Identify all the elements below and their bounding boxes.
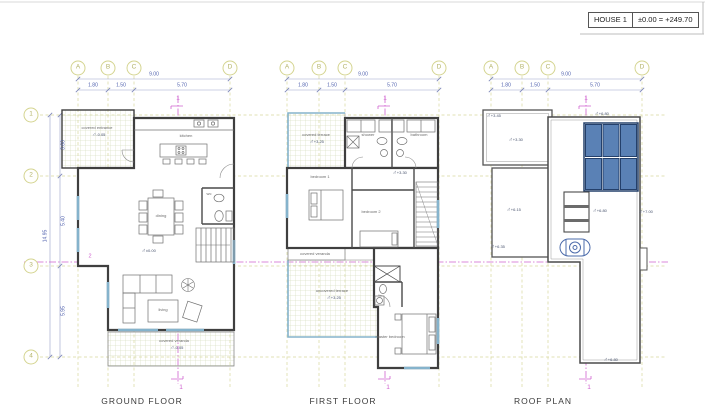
bedroom-block bbox=[287, 168, 438, 248]
room-label-entrance: covered entrance bbox=[82, 126, 113, 130]
grid-bubble-row: 1 bbox=[24, 108, 39, 123]
grid-bubble-col: D bbox=[635, 61, 650, 76]
room-label-living: living bbox=[158, 308, 167, 312]
level-mark: ◿+6.15 bbox=[507, 208, 521, 212]
dim-total: 9.00 bbox=[149, 73, 159, 78]
first-floor-drawing bbox=[287, 113, 438, 368]
level-mark: ◿+3.30 bbox=[393, 171, 407, 175]
title-block: HOUSE 1 ±0.00 = +249.70 bbox=[588, 12, 699, 28]
grid-bubble-col: A bbox=[71, 61, 86, 76]
level-mark: ◿+6.35 bbox=[491, 245, 505, 249]
grid-bubble-col: C bbox=[127, 61, 142, 76]
grid-bubble-col: B bbox=[101, 61, 116, 76]
datum-label: ±0.00 = +249.70 bbox=[632, 13, 698, 27]
section-marker: 2 bbox=[88, 254, 91, 260]
dim-total: 9.00 bbox=[561, 73, 571, 78]
room-label-uncovered: uncovered terrace bbox=[316, 289, 348, 293]
level-mark: ◿+6.80 bbox=[593, 209, 607, 213]
dim-row-total: 14.95 bbox=[44, 230, 49, 243]
level-flag-icon: ◿ bbox=[509, 138, 512, 142]
dim-seg: 5.70 bbox=[387, 84, 397, 89]
level-mark: ◿-0.05 bbox=[171, 346, 184, 350]
level-flag-icon: ◿ bbox=[595, 112, 598, 116]
level-flag-icon: ◿ bbox=[142, 249, 145, 253]
drawing-sheet: { "title_block": { "house_label": "HOUSE… bbox=[0, 0, 705, 419]
level-mark: ◿+6.80 bbox=[604, 358, 618, 362]
level-mark: ◿+7.00 bbox=[639, 210, 653, 214]
dim-seg: 1.50 bbox=[327, 84, 337, 89]
level-flag-icon: ◿ bbox=[93, 133, 96, 137]
dim-seg: 1.50 bbox=[116, 84, 126, 89]
level-flag-icon: ◿ bbox=[393, 171, 396, 175]
level-mark: ◿+3.30 bbox=[509, 138, 523, 142]
level-flag-icon: ◿ bbox=[171, 346, 174, 350]
section-marker: 1 bbox=[587, 385, 591, 392]
dim-row-seg: 3.60 bbox=[62, 140, 67, 150]
room-label-shower: shower bbox=[362, 133, 375, 137]
grid-bubble-row: 3 bbox=[24, 259, 39, 274]
solar-panels bbox=[584, 123, 638, 191]
plan-title-first: FIRST FLOOR bbox=[309, 396, 376, 406]
level-mark: ◿-0.05 bbox=[93, 133, 106, 137]
room-label-balcony: covered veranda bbox=[300, 252, 330, 256]
roof-drawing bbox=[483, 110, 647, 363]
room-label-dining: dining bbox=[156, 214, 167, 218]
level-flag-icon: ◿ bbox=[327, 296, 330, 300]
grid-bubble-col: C bbox=[338, 61, 353, 76]
room-label-wc: wc bbox=[207, 192, 212, 196]
dim-row-seg: 5.95 bbox=[62, 306, 67, 316]
room-label-kitchen: kitchen bbox=[180, 134, 193, 138]
dim-seg: 1.80 bbox=[88, 84, 98, 89]
dim-seg: 1.50 bbox=[530, 84, 540, 89]
plan-title-ground: GROUND FLOOR bbox=[101, 396, 182, 406]
level-mark: ◿±0.00 bbox=[142, 249, 156, 253]
chimney bbox=[640, 248, 647, 270]
grid-bubble-row: 4 bbox=[24, 350, 39, 365]
section-marker: 1 bbox=[584, 96, 588, 103]
level-mark: ◿+3.25 bbox=[310, 140, 324, 144]
grid-bubble-col: A bbox=[280, 61, 295, 76]
grid-bubble-col: A bbox=[484, 61, 499, 76]
section-marker: 1 bbox=[386, 385, 390, 392]
level-flag-icon: ◿ bbox=[593, 209, 596, 213]
level-mark: ◿+3.25 bbox=[327, 296, 341, 300]
section-marker: 1 bbox=[383, 96, 387, 103]
room-label-bedroom2: bedroom 2 bbox=[361, 210, 380, 214]
level-flag-icon: ◿ bbox=[507, 208, 510, 212]
dim-total: 9.00 bbox=[358, 73, 368, 78]
level-flag-icon: ◿ bbox=[487, 114, 490, 118]
ground-floor-drawing bbox=[62, 110, 234, 366]
grid-bubble-col: D bbox=[432, 61, 447, 76]
room-label-master: master bedroom bbox=[375, 335, 404, 339]
level-mark: ◿+6.80 bbox=[595, 112, 609, 116]
level-mark: ◿+3.45 bbox=[487, 114, 501, 118]
grid-bubble-col: C bbox=[541, 61, 556, 76]
house-label: HOUSE 1 bbox=[589, 13, 632, 27]
level-flag-icon: ◿ bbox=[639, 210, 642, 214]
grid-bubble-col: D bbox=[223, 61, 238, 76]
room-label-bedroom1: bedroom 1 bbox=[310, 175, 329, 179]
room-label-terrace: covered terrace bbox=[302, 133, 330, 137]
level-flag-icon: ◿ bbox=[310, 140, 313, 144]
dim-seg: 1.80 bbox=[501, 84, 511, 89]
grid-bubble-col: B bbox=[312, 61, 327, 76]
grid-bubble-row: 2 bbox=[24, 169, 39, 184]
section-marker: 1 bbox=[179, 385, 183, 392]
section-marker: 1 bbox=[176, 96, 180, 103]
dim-row-seg: 5.40 bbox=[62, 216, 67, 226]
level-flag-icon: ◿ bbox=[491, 245, 494, 249]
grid-bubble-col: B bbox=[515, 61, 530, 76]
room-label-bathroom: bathroom bbox=[411, 133, 428, 137]
dim-seg: 5.70 bbox=[590, 84, 600, 89]
dim-seg: 5.70 bbox=[177, 84, 187, 89]
dim-seg: 1.80 bbox=[298, 84, 308, 89]
entrance-porch bbox=[62, 110, 134, 168]
room-label-veranda: covered veranda bbox=[159, 339, 189, 343]
level-flag-icon: ◿ bbox=[604, 358, 607, 362]
plan-title-roof: ROOF PLAN bbox=[514, 396, 572, 406]
